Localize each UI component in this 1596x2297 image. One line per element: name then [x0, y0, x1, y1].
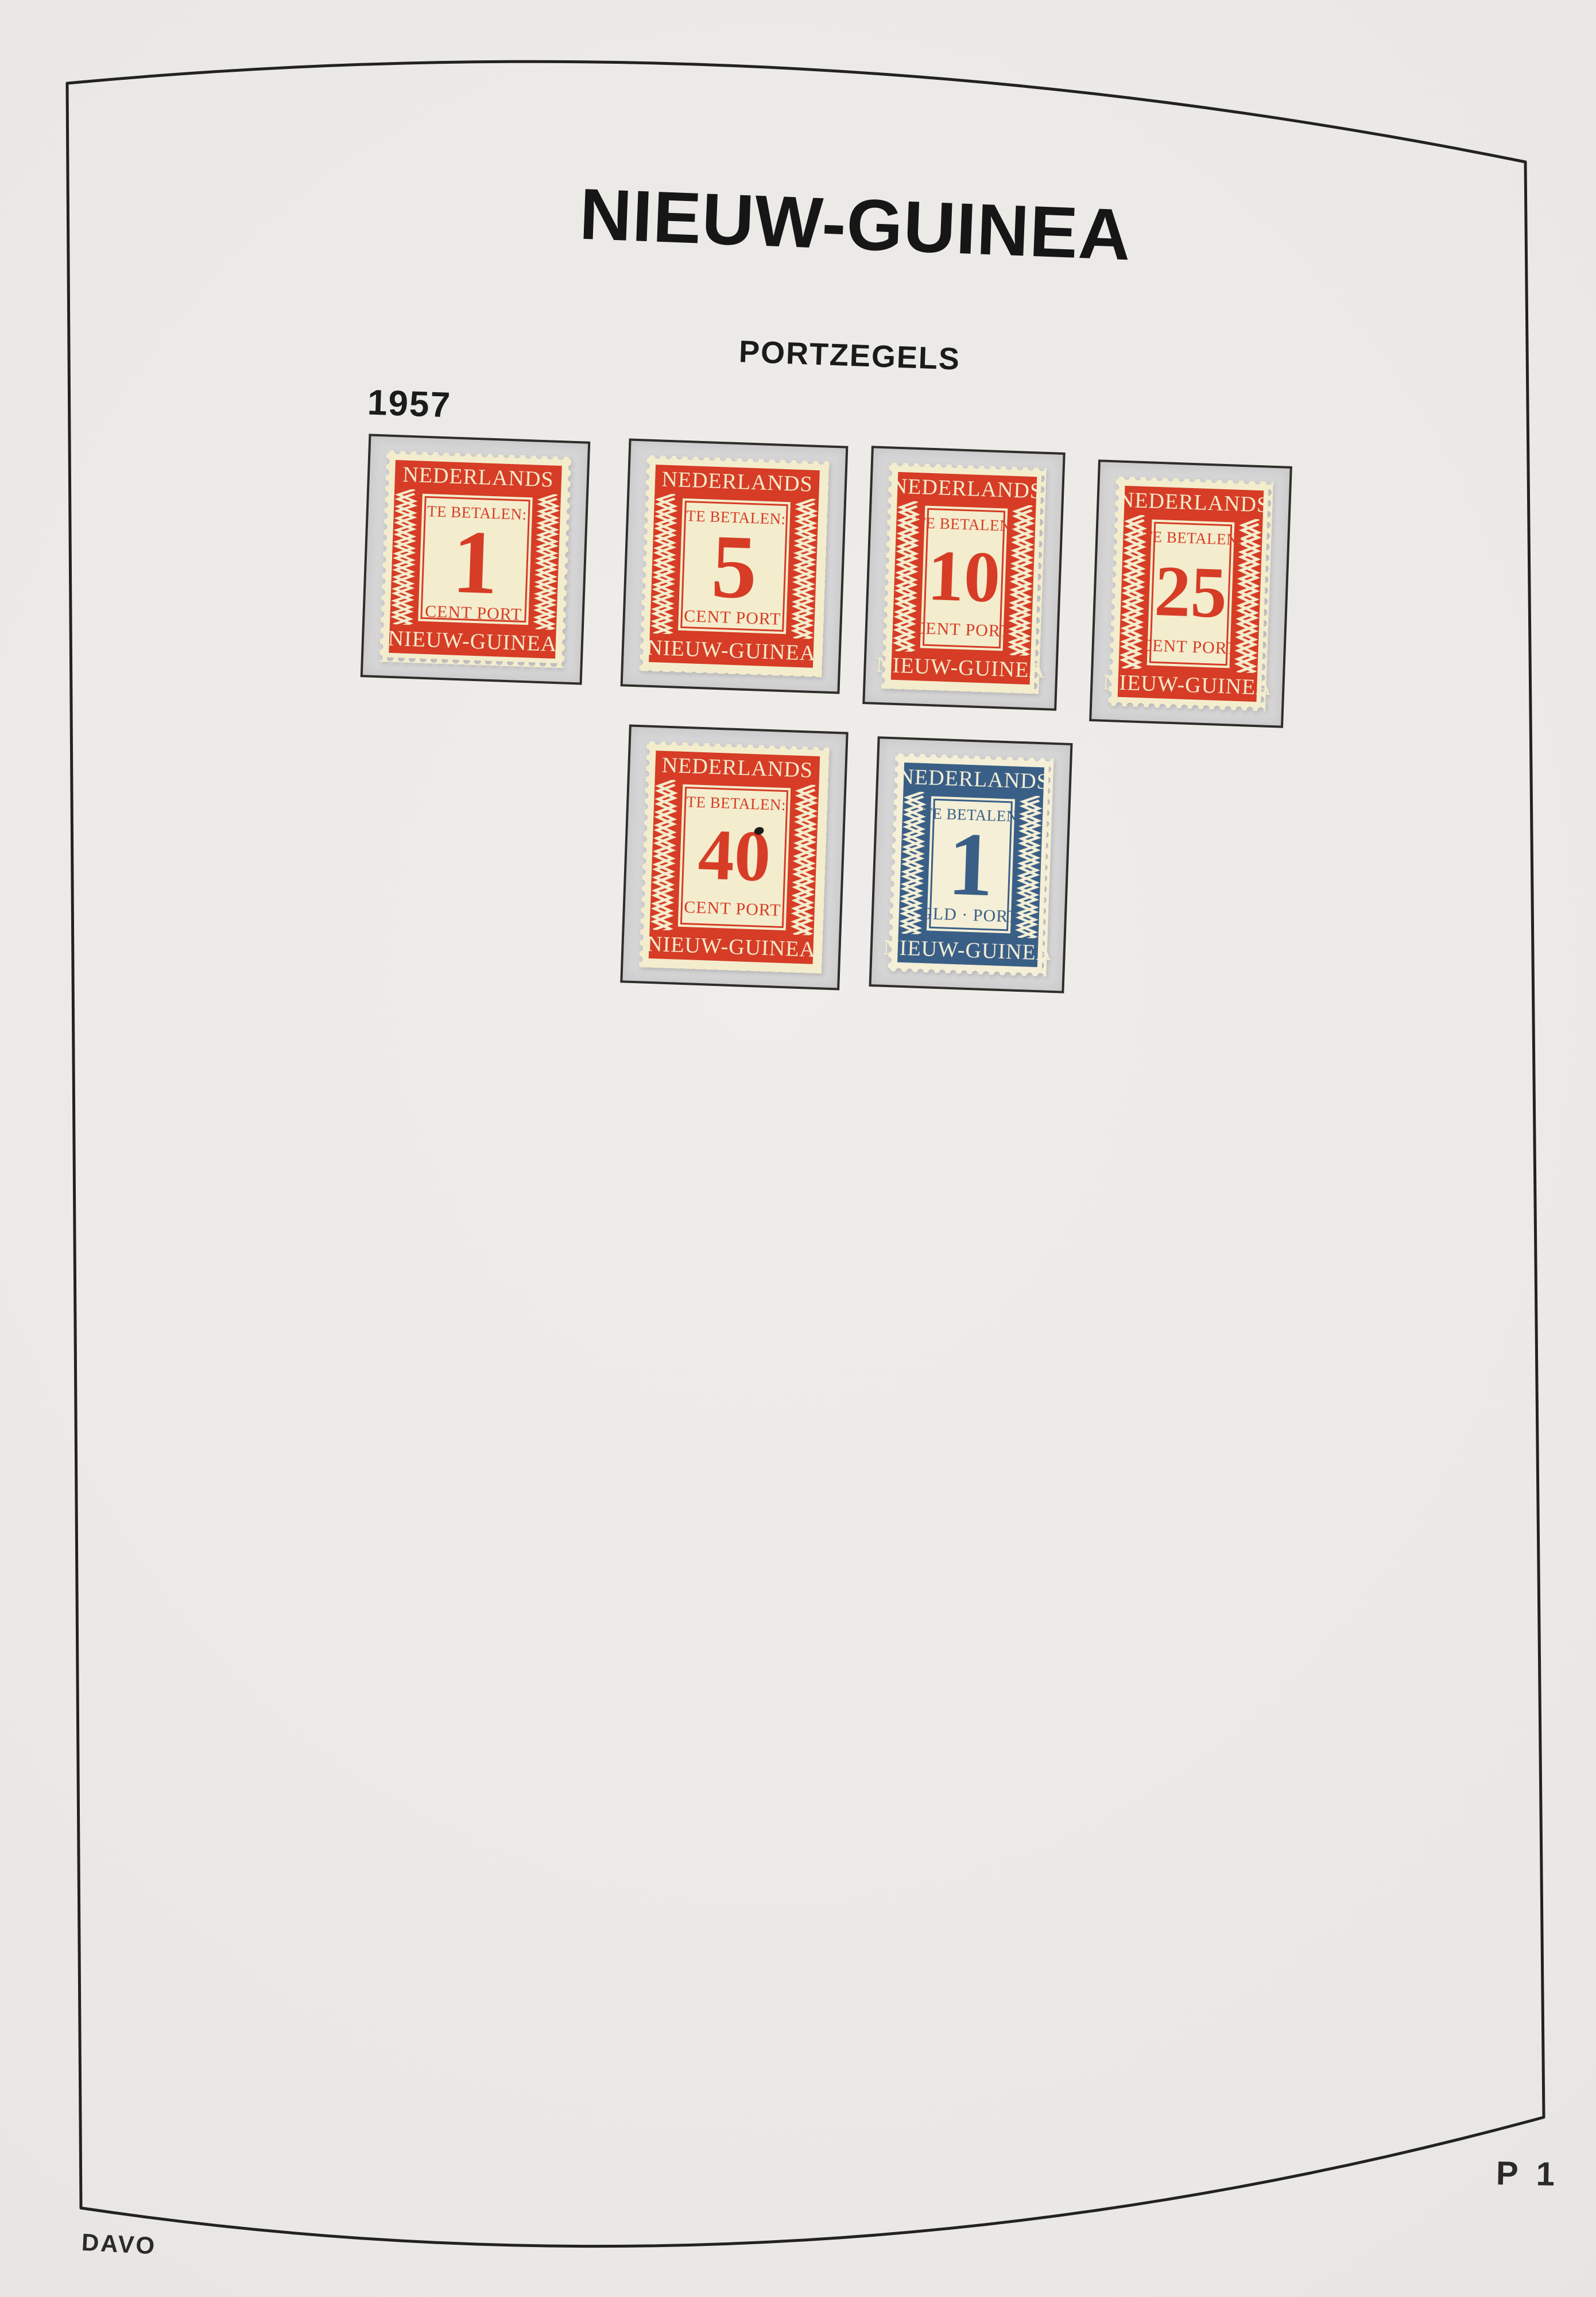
stamp-face: NEDERLANDS TE BETALEN: 1 CENT PORT NIEUW… — [389, 460, 562, 659]
zigzag-ornament-right — [790, 498, 819, 639]
stamp-center-panel: TE BETALEN: 40 CENT PORT — [675, 782, 794, 934]
stamp-5-cent: NEDERLANDS TE BETALEN: 5 CENT PORT NIEUW… — [640, 455, 830, 678]
stamp-mount-box-40-cent: NEDERLANDS TE BETALEN: 40 CENT PORT NIEU… — [620, 724, 848, 990]
stamp-country-label: NEDERLANDS — [1124, 486, 1264, 519]
stamp-mount-box-25-cent: NEDERLANDS TE BETALEN: 25 CENT PORT NIEU… — [1089, 459, 1292, 728]
stamp-mount-box-1-gld: NEDERLANDS TE BETALEN: 1 GLD · PORT NIEU… — [869, 736, 1072, 993]
stamp-face: NEDERLANDS TE BETALEN: 10 CENT PORT NIEU… — [891, 472, 1037, 685]
stamp-10-cent: NEDERLANDS TE BETALEN: 10 CENT PORT NIEU… — [881, 462, 1047, 694]
stamp-1-gld: NEDERLANDS TE BETALEN: 1 GLD · PORT NIEU… — [888, 753, 1053, 976]
stamp-value: 1 — [947, 823, 995, 907]
year-label: 1957 — [367, 382, 452, 426]
stamp-value: 1 — [451, 521, 499, 605]
album-page-photo: NIEUW-GUINEA PORTZEGELS 1957 NEDERLANDS … — [0, 0, 1596, 2297]
stamp-mount-box-5-cent: NEDERLANDS TE BETALEN: 5 CENT PORT NIEUW… — [621, 438, 849, 694]
zigzag-ornament-left — [650, 779, 679, 930]
stamp-bottom-label: NIEUW-GUINEA — [897, 934, 1039, 967]
stamp-country-label: NEDERLANDS — [394, 460, 562, 494]
stamp-1-cent: NEDERLANDS TE BETALEN: 1 CENT PORT NIEUW… — [379, 450, 572, 668]
stamp-unit-label: CENT PORT — [913, 618, 1011, 641]
stamp-25-cent: NEDERLANDS TE BETALEN: 25 CENT PORT NIEU… — [1108, 476, 1273, 711]
stamp-center-panel: TE BETALEN: 1 CENT PORT — [415, 491, 536, 628]
stamp-value: 5 — [710, 526, 758, 609]
stamp-country-label: NEDERLANDS — [654, 465, 820, 499]
stamp-unit-label: CENT PORT — [425, 602, 522, 625]
zigzag-ornament-left — [390, 489, 419, 625]
stamp-mount-box-10-cent: NEDERLANDS TE BETALEN: 10 CENT PORT NIEU… — [862, 446, 1065, 711]
stamp-unit-label: CENT PORT — [1140, 636, 1238, 659]
stamp-bottom-label: NIEUW-GUINEA — [649, 930, 814, 964]
zigzag-ornament-left — [650, 493, 679, 634]
stamp-center-panel: TE BETALEN: 1 GLD · PORT — [924, 793, 1018, 936]
stamp-mount-box-1-cent: NEDERLANDS TE BETALEN: 1 CENT PORT NIEUW… — [361, 434, 591, 685]
stamp-face: NEDERLANDS TE BETALEN: 40 CENT PORT NIEU… — [649, 751, 820, 964]
stamp-bottom-label: NIEUW-GUINEA — [389, 624, 556, 659]
stamp-bottom-label: NIEUW-GUINEA — [649, 633, 814, 668]
stamp-face: NEDERLANDS TE BETALEN: 5 CENT PORT NIEUW… — [649, 465, 820, 668]
stamp-center-panel: TE BETALEN: 5 CENT PORT — [675, 496, 793, 637]
zigzag-ornament-right — [532, 494, 561, 630]
stamp-center-panel: TE BETALEN: 25 CENT PORT — [1144, 516, 1237, 671]
stamp-bottom-label: NIEUW-GUINEA — [1118, 668, 1258, 702]
stamp-country-label: NEDERLANDS — [903, 763, 1044, 796]
publisher-label: DAVO — [81, 2229, 157, 2260]
stamp-value: 10 — [927, 543, 1001, 611]
stamp-unit-label: CENT PORT — [684, 898, 781, 921]
stamp-country-label: NEDERLANDS — [655, 751, 820, 785]
stamp-face: NEDERLANDS TE BETALEN: 1 GLD · PORT NIEU… — [897, 763, 1044, 967]
stamp-value: 25 — [1153, 559, 1228, 627]
stamp-country-label: NEDERLANDS — [897, 472, 1037, 505]
page-number: P 1 — [1496, 2154, 1559, 2194]
stamp-40-cent: NEDERLANDS TE BETALEN: 40 CENT PORT NIEU… — [639, 741, 830, 974]
stamp-face: NEDERLANDS TE BETALEN: 25 CENT PORT NIEU… — [1118, 486, 1264, 702]
stamp-unit-label: CENT PORT — [684, 606, 781, 629]
stamp-bottom-label: NIEUW-GUINEA — [891, 651, 1031, 685]
stamp-unit-label: GLD · PORT — [920, 904, 1019, 927]
stamp-center-panel: TE BETALEN: 10 CENT PORT — [917, 502, 1011, 653]
